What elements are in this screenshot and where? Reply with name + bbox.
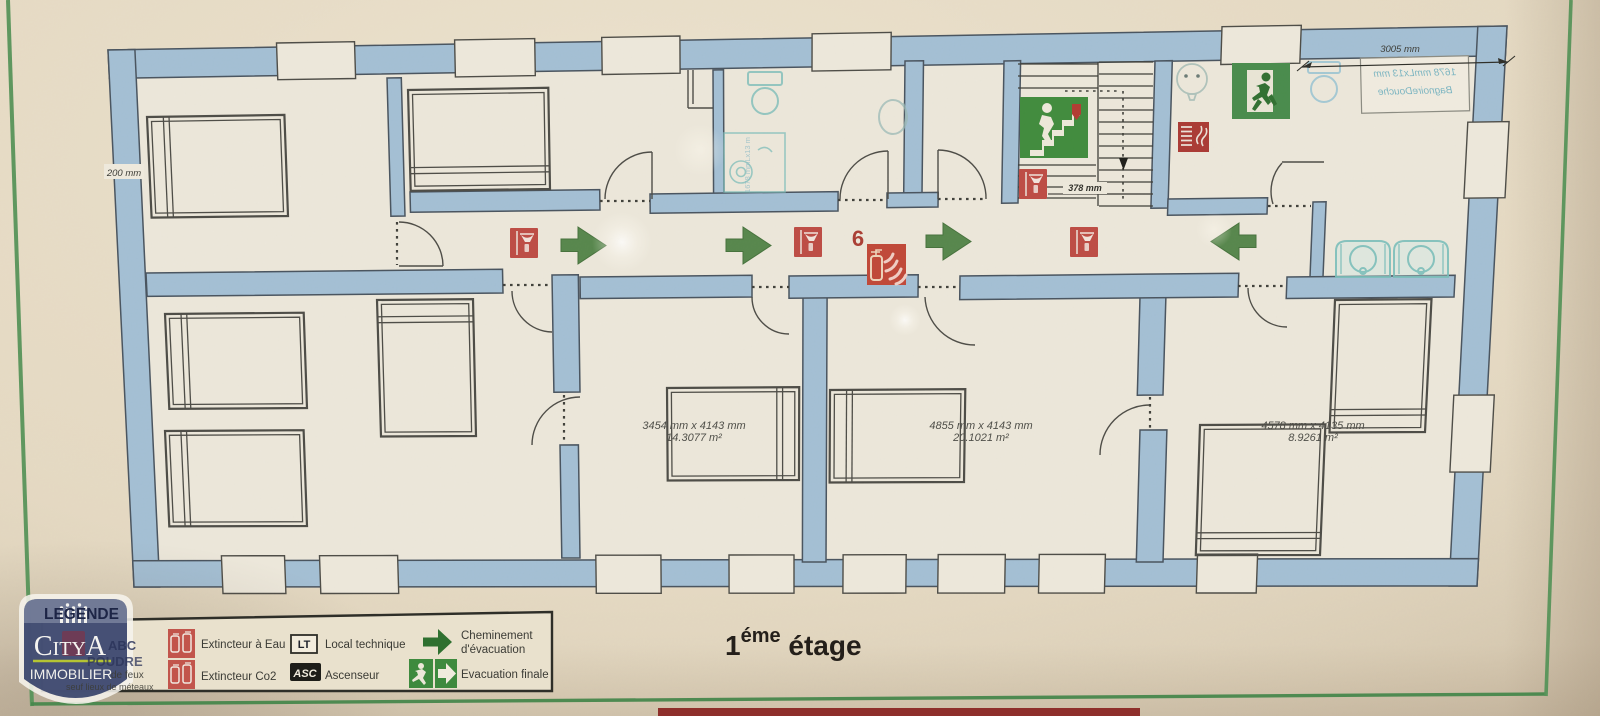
svg-text:ASC: ASC <box>292 668 317 680</box>
svg-text:Ascenseur: Ascenseur <box>325 670 380 682</box>
svg-text:ABC: ABC <box>108 638 137 653</box>
svg-text:seuf lieux de méteaux: seuf lieux de méteaux <box>66 682 154 692</box>
svg-text:de feux: de feux <box>111 670 144 681</box>
svg-text:POUDRE: POUDRE <box>87 654 143 669</box>
svg-text:Local technique: Local technique <box>325 639 406 651</box>
svg-text:d'évacuation: d'évacuation <box>461 644 525 656</box>
svg-text:Extincteur à Eau: Extincteur à Eau <box>201 639 285 651</box>
svg-text:Extincteur Co2: Extincteur Co2 <box>201 671 276 683</box>
svg-text:LT: LT <box>298 639 311 651</box>
svg-text:LEGENDE: LEGENDE <box>44 606 119 623</box>
svg-text:Cheminement: Cheminement <box>461 630 533 642</box>
svg-text:Evacuation finale: Evacuation finale <box>461 669 549 681</box>
